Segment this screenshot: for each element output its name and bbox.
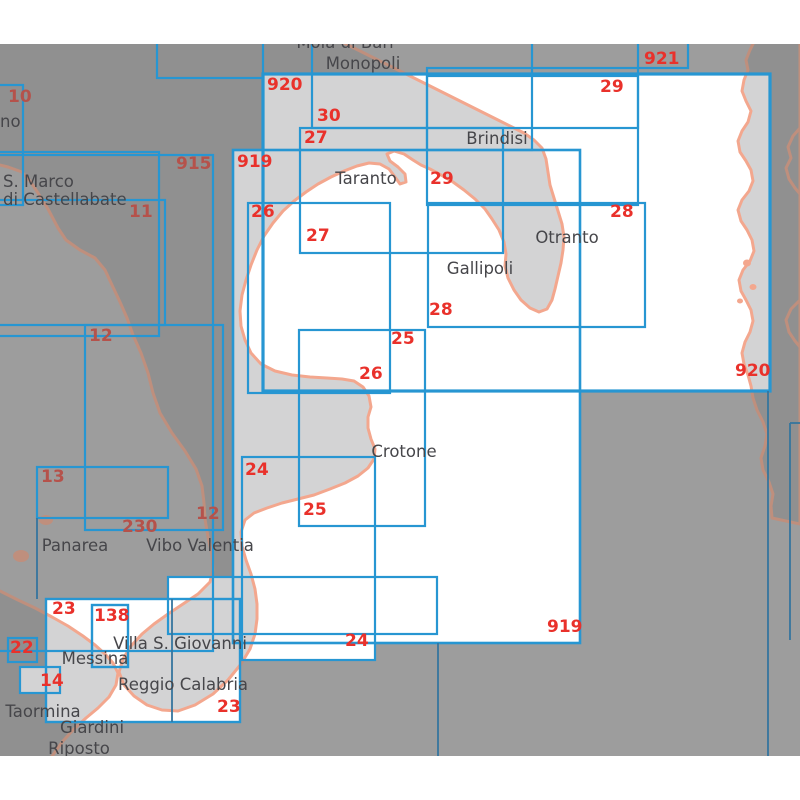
place-label: di Castellabate (3, 190, 127, 209)
chart-catalog-page: 9209209213029292727282891991926262525242… (0, 0, 800, 800)
chart-number-label: 10 (8, 87, 32, 107)
place-label: S. Marco (3, 172, 74, 191)
chart-number-label: 27 (306, 226, 330, 246)
chart-number-label: 921 (644, 49, 680, 69)
island (750, 284, 757, 290)
chart-index-map: 9209209213029292727282891991926262525242… (0, 0, 800, 800)
place-label: Crotone (371, 442, 436, 461)
chart-number-label: 915 (176, 154, 212, 174)
chart-number-label: 919 (547, 617, 583, 637)
chart-number-label: 30 (317, 106, 341, 126)
chart-number-label: 29 (430, 169, 454, 189)
chart-number-label: 24 (345, 631, 369, 651)
place-label: Giardini (60, 718, 124, 737)
place-label: Riposto (48, 739, 110, 758)
place-label: Panarea (42, 536, 109, 555)
chart-number-label: 920 (735, 361, 771, 381)
map-layers: 9209209213029292727282891991926262525242… (0, 0, 800, 800)
chart-number-label: 27 (304, 128, 328, 148)
island (743, 260, 751, 267)
island (39, 515, 53, 525)
place-label: Mola di Bari (296, 33, 393, 52)
chart-number-label: 25 (303, 500, 327, 520)
chart-number-label: 26 (359, 364, 383, 384)
chart-number-label: 13 (41, 467, 65, 487)
chart-number-label: 22 (10, 638, 34, 658)
place-label: Otranto (535, 228, 598, 247)
chart-number-label: 14 (40, 671, 64, 691)
place-label: Brindisi (466, 129, 527, 148)
place-label: Messina (62, 649, 129, 668)
place-label: Monopoli (326, 54, 401, 73)
chart-number-label: 12 (89, 326, 113, 346)
chart-number-label: 919 (237, 152, 273, 172)
place-label: Villa S. Giovanni (113, 634, 247, 653)
chart-number-label: 230 (122, 517, 158, 537)
chart-number-label: 28 (610, 202, 634, 222)
chart-number-label: 23 (217, 697, 241, 717)
chart-number-label: 12 (196, 504, 220, 524)
chart-number-label: 920 (267, 75, 303, 95)
island (13, 550, 29, 562)
place-label: Taranto (334, 169, 396, 188)
chart-number-label: 23 (52, 599, 76, 619)
chart-number-label: 26 (251, 202, 275, 222)
place-label: Gallipoli (447, 259, 513, 278)
chart-number-label: 24 (245, 460, 269, 480)
place-label: no (0, 112, 21, 131)
place-label: Vibo Valentia (146, 536, 254, 555)
chart-number-label: 29 (600, 77, 624, 97)
chart-number-label: 138 (94, 606, 130, 626)
island (737, 299, 743, 304)
place-label: Reggio Calabria (118, 675, 248, 694)
chart-number-label: 25 (391, 329, 415, 349)
chart-number-label: 28 (429, 300, 453, 320)
chart-number-label: 11 (129, 202, 153, 222)
